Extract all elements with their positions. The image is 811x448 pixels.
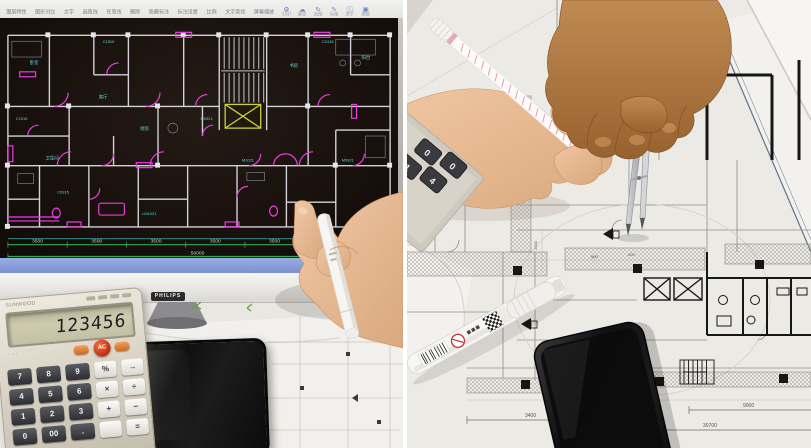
panel-divider [403,0,407,448]
svg-text:卫生间: 卫生间 [45,155,59,162]
left-photo-monitor-cad: 图层特性 图形对比 文字 画直线 任意线 删除 隐藏标注 标注设置 比例 文字查… [0,0,403,448]
cad-elevator [225,104,261,128]
calc-key: × [96,380,119,398]
calc-key: ÷ [122,378,145,396]
calculator-brand: SUNWOOD [5,300,36,309]
cad-toolbar: 图层特性 图形对比 文字 画直线 任意线 删除 隐藏标注 标注设置 比例 文字查… [0,0,403,19]
svg-text:200: 200 [628,252,635,257]
svg-text:C1515: C1515 [16,116,28,121]
calc-key: − [124,398,147,416]
calc-key: 2 [40,405,65,423]
calculator-display: 123456 [5,302,136,348]
svg-text:7800: 7800 [341,239,352,245]
cad-menu-item: 删除 [130,8,140,15]
table-corner [407,0,433,34]
svg-text:3500: 3500 [91,239,102,245]
photo-collage: 图层特性 图形对比 文字 画直线 任意线 删除 隐藏标注 标注设置 比例 文字查… [0,0,811,448]
calculator-ac-key: AC [93,339,111,357]
cad-menu-item: 文字查找 [225,8,245,15]
svg-text:M1021: M1021 [242,158,254,163]
calculator-speaker-dots: ··· [8,350,24,357]
svg-text:M0921: M0921 [200,116,212,121]
cad-tool-style: ✎风格 [330,6,339,18]
cad-tool-print: ⚙打印 [282,6,291,18]
cad-menu-item: 标注设置 [178,8,198,15]
cad-menu-item: 任意线 [106,8,121,15]
svg-text:9000: 9000 [743,403,754,409]
svg-text:3500: 3500 [32,239,43,245]
calc-key: 6 [67,383,92,401]
svg-text:卧室: 卧室 [30,59,39,66]
svg-text:M0921: M0921 [342,158,354,163]
cad-menu-item: 文字 [64,8,74,15]
calc-key: . [70,423,95,441]
cad-walls [8,35,390,227]
calculator-top-buttons [86,293,131,301]
svg-text:3400: 3400 [525,413,536,419]
cad-floor-plan: 卧室 客厅 厨房 书房 阳台 卫生间 C1515 C2415 M0921 M10… [0,18,398,258]
monitor-brand-logo: PHILIPS [151,292,185,301]
calc-key: 1 [11,408,36,426]
smartphone-right [531,317,686,448]
cad-drawing-screen: 卧室 客厅 厨房 书房 阳台 卫生间 C1515 C2415 M0921 M10… [0,18,398,258]
svg-text:书房: 书房 [289,62,298,69]
cad-doors-magenta [8,32,365,227]
cad-tool-about: ⓘ关于 [345,6,354,18]
calculator-ct-key [73,345,89,355]
cad-tool-system: ▣系统 [361,6,370,18]
cad-menu-item: 画直线 [83,8,98,15]
cad-menu-item: 比例 [206,8,216,15]
cad-menu-item: 屏幕缩放 [254,8,274,15]
svg-text:3500: 3500 [269,239,280,245]
svg-text:C2415: C2415 [322,39,334,44]
cad-menu-item: 隐藏标注 [149,8,169,15]
svg-text:2000: 2000 [533,240,538,250]
calc-key: % [94,360,117,378]
calculator-keypad: 7 8 9 % → 4 5 6 × ÷ 1 2 3 + − 0 00 . = [7,358,147,445]
cad-dimensions: 3500 3500 3500 3500 3500 7800 56000 [8,239,390,258]
calc-key: = [126,418,149,436]
svg-text:LM1021: LM1021 [142,211,156,216]
calc-key [99,420,122,438]
cad-furniture [12,39,385,183]
calc-key: + [97,400,120,418]
calculator: SUNWOOD 123456 ··· AC 7 8 9 % → 4 5 6 × … [0,287,156,448]
calc-key: → [121,358,144,376]
calc-key: 00 [41,425,66,443]
svg-text:客厅: 客厅 [99,93,108,100]
right-photo-blueprint: 3400 9000 30700 500 200 2000 [407,0,811,448]
calculator-ce-key [114,341,130,351]
cad-menu-item: 图层特性 [6,8,26,15]
svg-text:厨房: 厨房 [140,125,149,132]
calc-key: 7 [7,368,32,386]
cad-total-dimension: 56000 [191,251,205,257]
cad-columns [5,32,392,229]
monitor-bottom-screen-strip [0,258,403,273]
calc-key: 3 [68,403,93,421]
calc-key: 0 [12,428,37,446]
svg-text:500: 500 [591,254,598,259]
calculator-display-value: 123456 [55,310,126,337]
svg-text:C0915: C0915 [57,189,69,194]
calc-key: 9 [65,363,90,381]
cad-tool-cloud: ☁备份 [298,6,307,18]
calc-key: 8 [36,365,61,383]
svg-text:阳台: 阳台 [361,54,370,61]
cad-stairs [221,37,264,102]
svg-text:3500: 3500 [151,239,162,245]
cad-tool-sync: ↻云图 [314,6,323,18]
cad-menu-item: 图形对比 [35,8,55,15]
calc-key: 4 [9,388,34,406]
svg-text:30700: 30700 [703,423,717,429]
monitor-stand-base [147,317,207,329]
elevator-shafts [644,278,702,300]
bathroom-fixtures [717,288,807,326]
svg-text:3500: 3500 [210,239,221,245]
svg-text:C1515: C1515 [103,39,115,44]
calc-key: 5 [38,385,63,403]
